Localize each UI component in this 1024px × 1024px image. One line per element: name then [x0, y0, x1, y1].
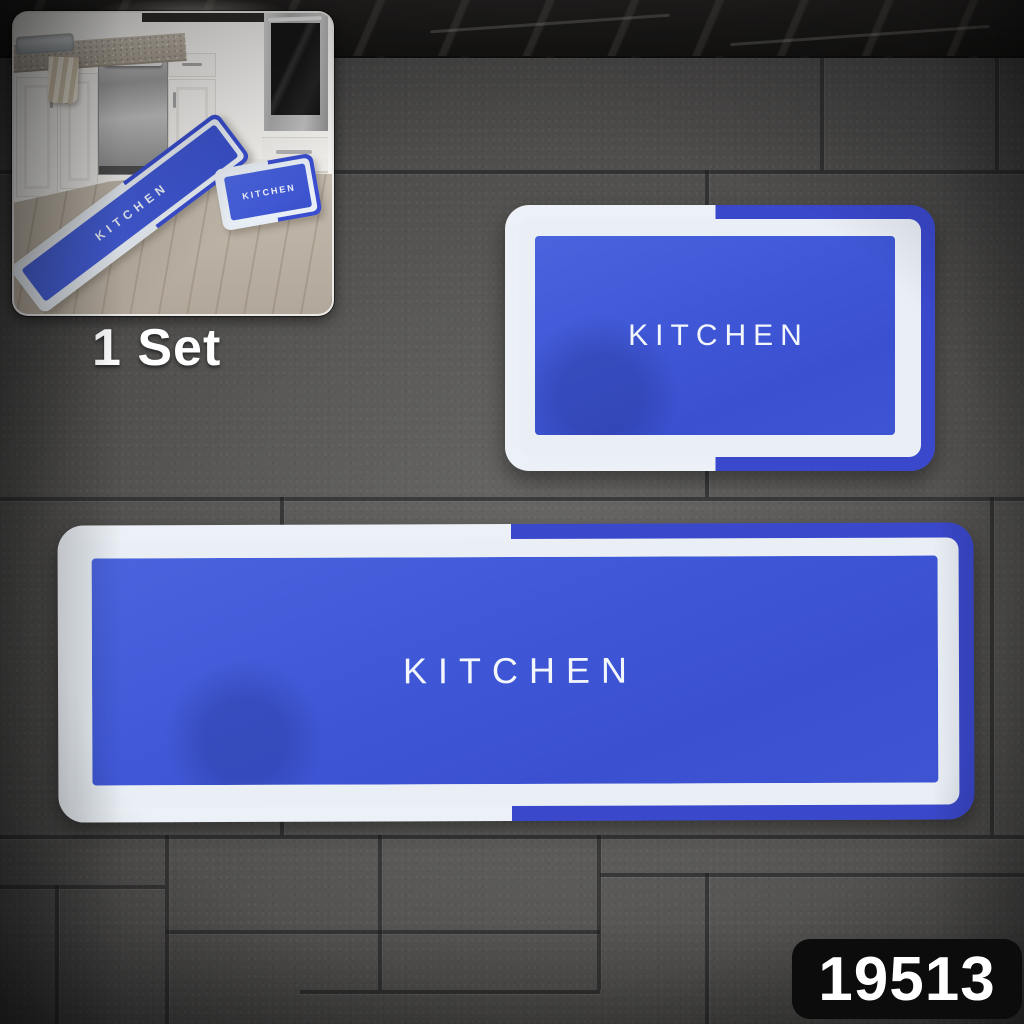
grout-line — [300, 990, 600, 994]
product-code-badge: 19513 — [792, 939, 1022, 1019]
runner-mat: KITCHEN — [57, 522, 974, 822]
runner-mat-label: KITCHEN — [392, 649, 638, 692]
runner-mat-field: KITCHEN — [92, 556, 939, 786]
marble-vein — [430, 14, 670, 34]
grout-line — [0, 885, 165, 889]
small-mat-field: KITCHEN — [535, 236, 895, 435]
grout-line — [165, 835, 169, 1024]
inset-photo: KITCHEN KITCHEN — [12, 11, 334, 316]
product-code-text: 19513 — [818, 944, 995, 1015]
grout-line — [820, 56, 824, 170]
grout-line — [995, 56, 999, 170]
product-photo-stage: KITCHEN KITCHEN 1 Set KITCHEN KITCHEN 19… — [0, 0, 1024, 1024]
grout-line — [165, 930, 600, 934]
grout-line — [600, 873, 1024, 877]
inset-towel — [47, 56, 79, 103]
grout-line — [597, 835, 601, 990]
inset-drawer-handle — [182, 63, 202, 66]
small-mat-label: KITCHEN — [621, 319, 809, 353]
inset-cabinet-panel — [24, 85, 50, 189]
grout-line — [0, 497, 1024, 501]
inset-oven-glass — [271, 23, 320, 115]
inset-oven — [264, 13, 328, 131]
grout-line — [55, 885, 59, 1024]
grout-line — [705, 873, 709, 1024]
set-count-label: 1 Set — [92, 318, 221, 378]
grout-line — [0, 835, 1024, 839]
inset-oven-handle — [268, 16, 322, 22]
marble-vein — [730, 25, 990, 46]
small-mat: KITCHEN — [505, 205, 935, 471]
inset-small-mat-label: KITCHEN — [240, 182, 297, 202]
grout-line — [990, 497, 994, 835]
grout-line — [378, 835, 382, 990]
inset-cabinet-handle — [173, 92, 176, 108]
